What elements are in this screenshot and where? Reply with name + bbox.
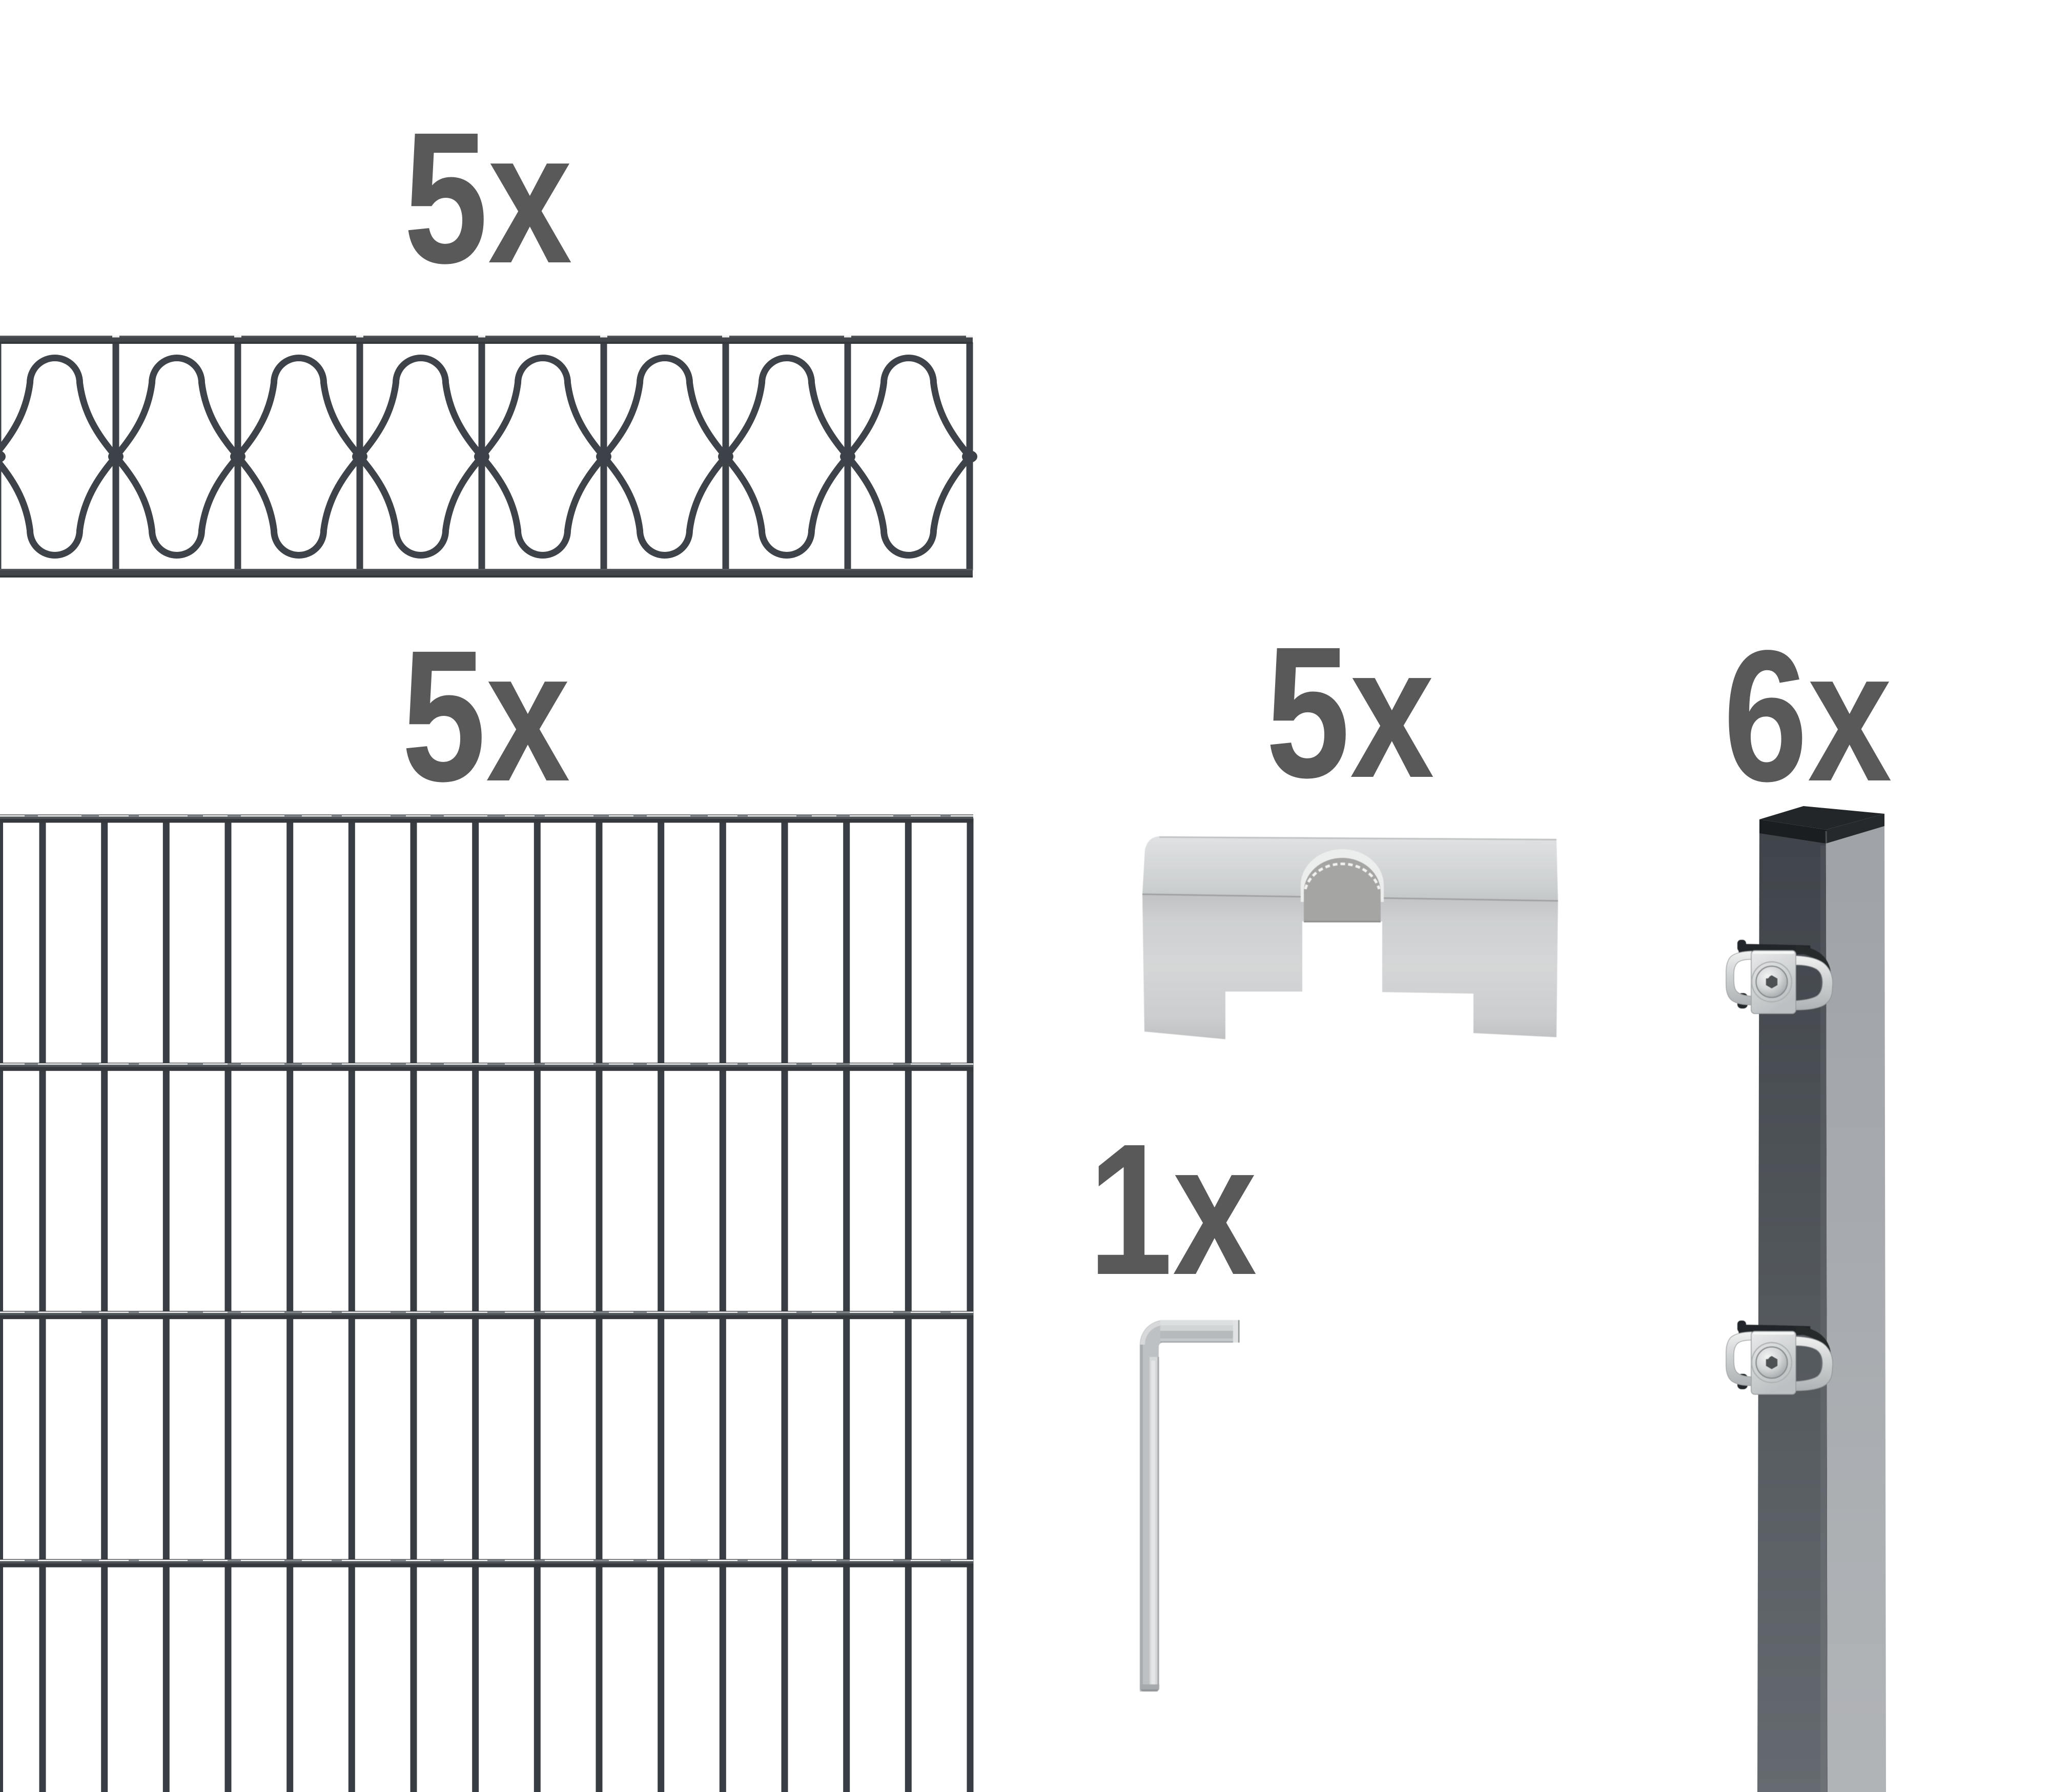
svg-text:1x: 1x <box>1089 1105 1258 1314</box>
svg-text:6x: 6x <box>1724 611 1893 820</box>
svg-text:5x: 5x <box>402 611 571 820</box>
svg-text:5x: 5x <box>1266 608 1436 817</box>
svg-text:5x: 5x <box>404 93 573 302</box>
